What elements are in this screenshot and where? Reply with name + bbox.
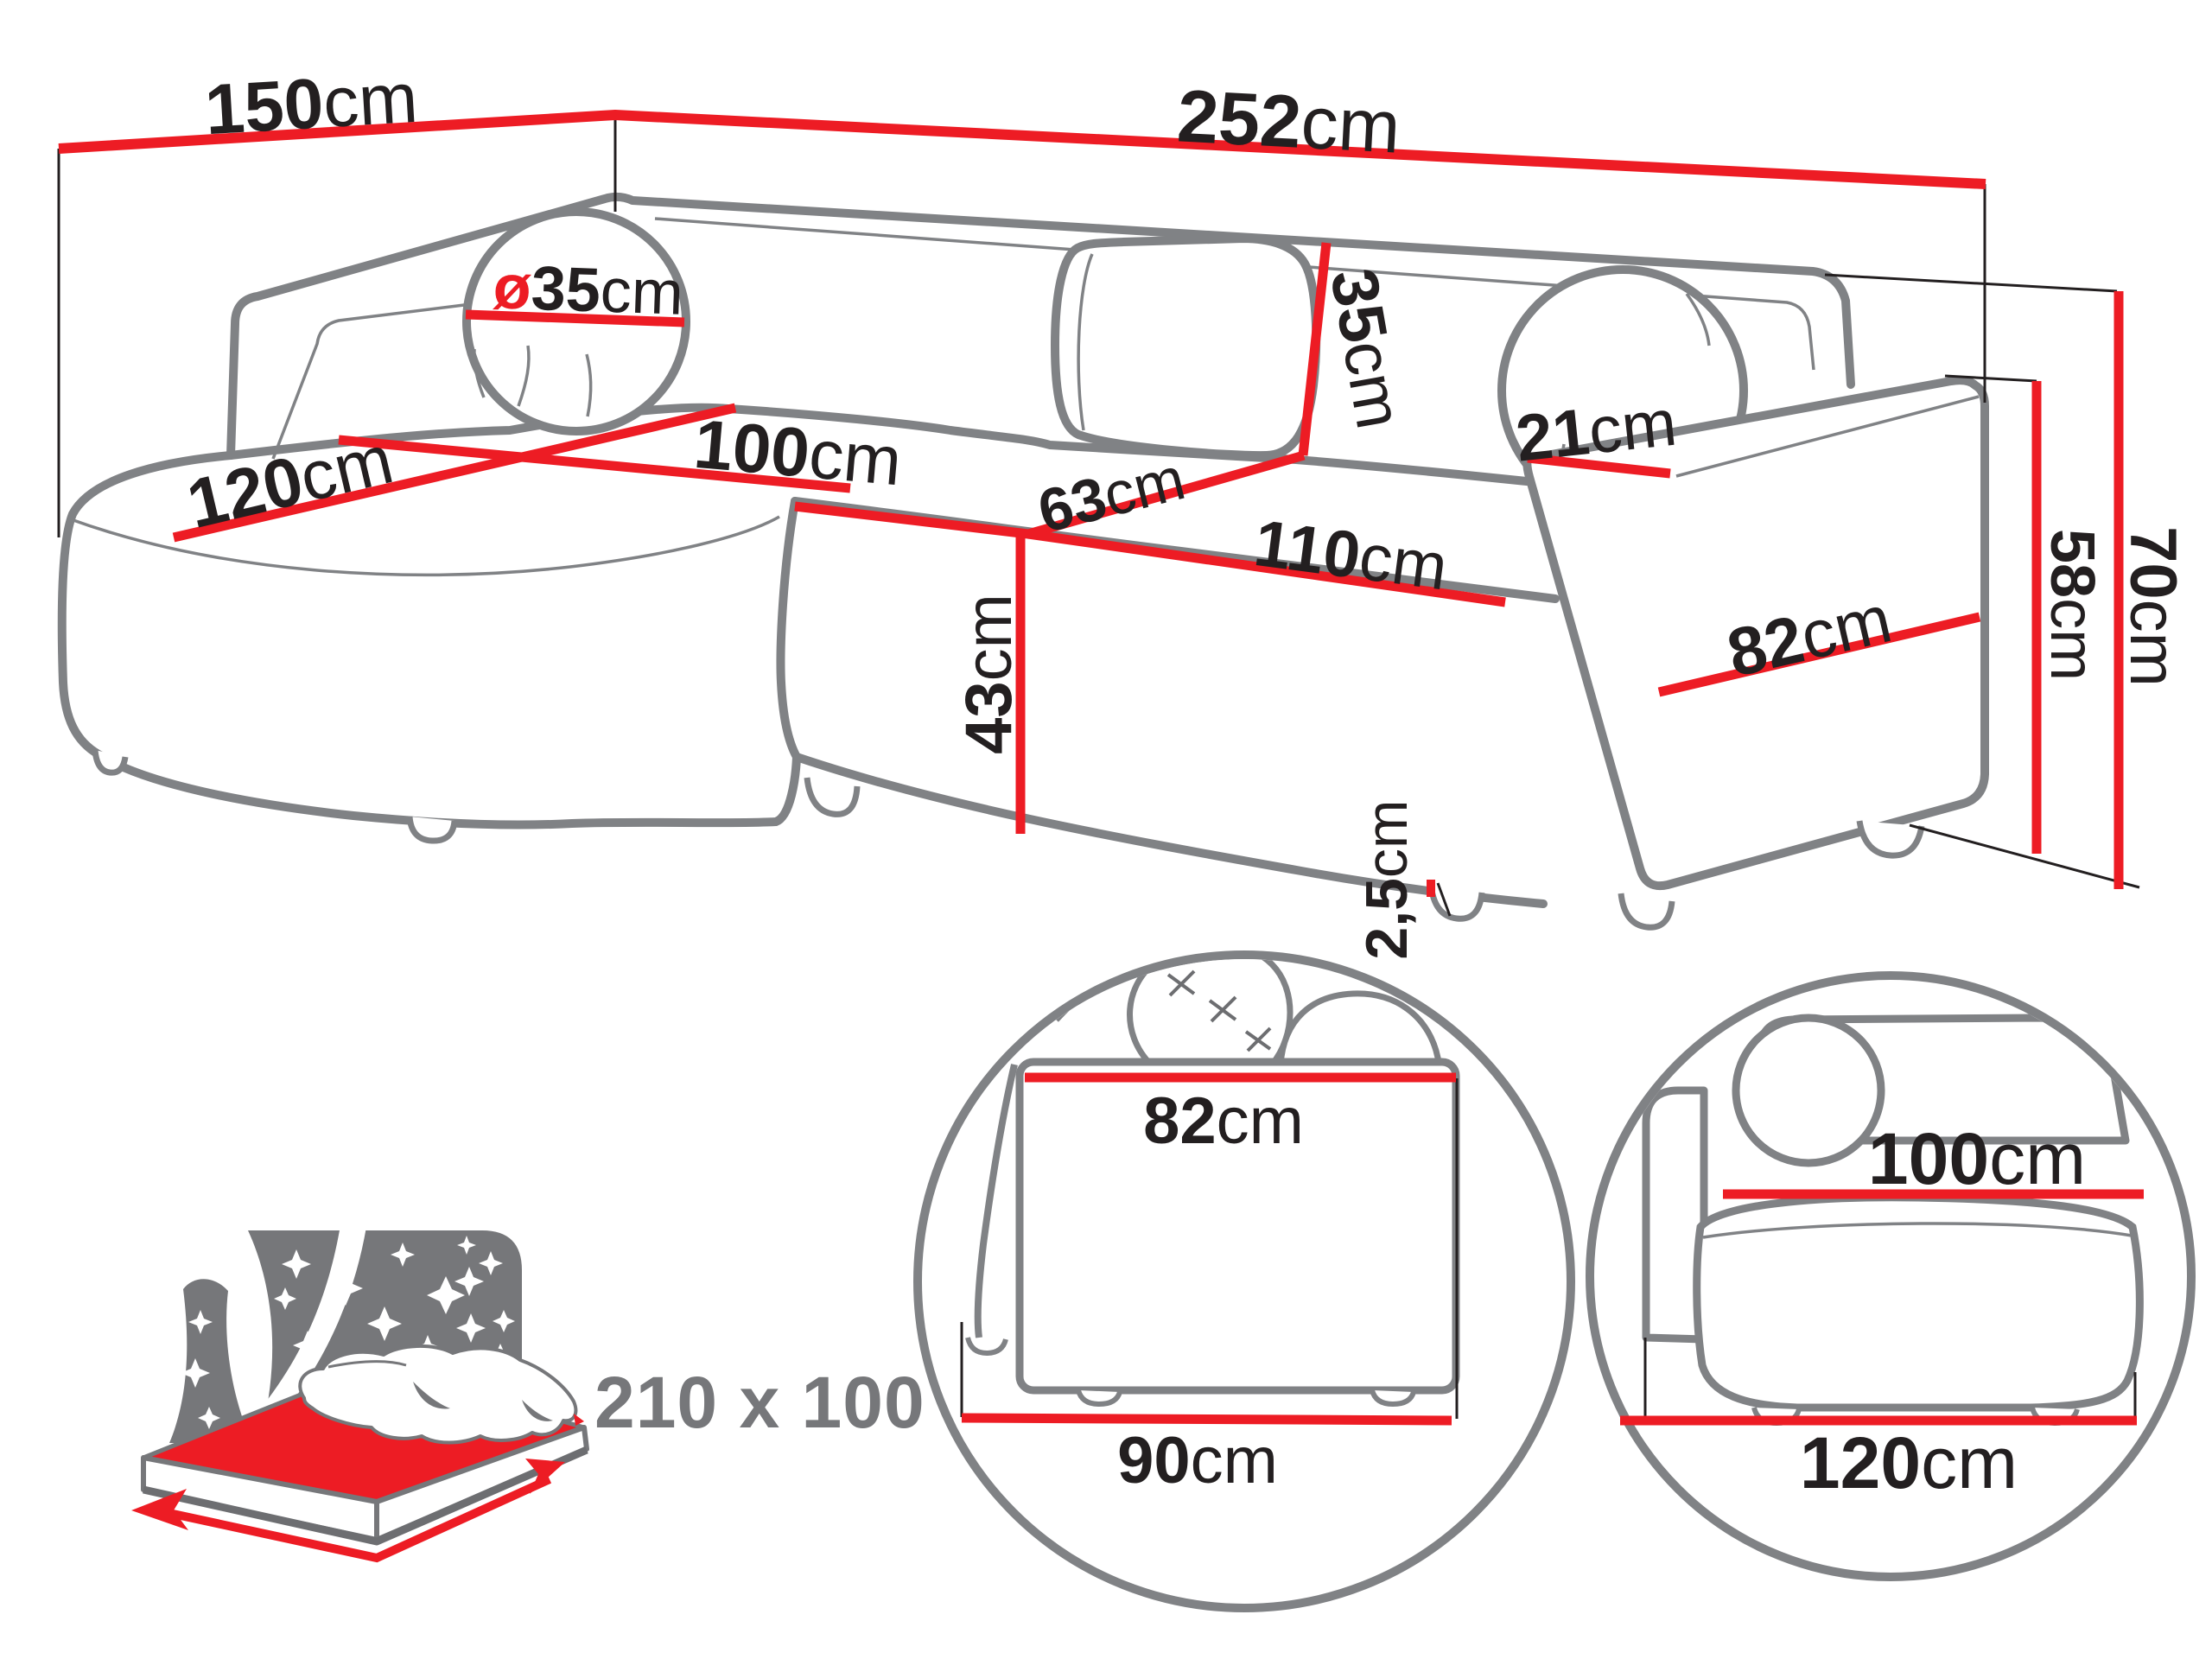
svg-text:120cm: 120cm [1800,1422,2018,1503]
svg-text:252cm: 252cm [1175,74,1402,168]
svg-text:43cm: 43cm [952,594,1026,754]
svg-text:90cm: 90cm [1117,1424,1278,1497]
svg-text:82cm: 82cm [1143,1084,1304,1158]
svg-text:210 x 100: 210 x 100 [594,1362,925,1443]
svg-text:ø35cm: ø35cm [492,252,684,328]
svg-text:100cm: 100cm [1868,1118,2086,1199]
svg-text:70cm: 70cm [2116,526,2190,687]
svg-text:150cm: 150cm [203,59,420,149]
svg-text:58cm: 58cm [2037,529,2107,681]
svg-text:2,5cm: 2,5cm [1354,799,1420,959]
